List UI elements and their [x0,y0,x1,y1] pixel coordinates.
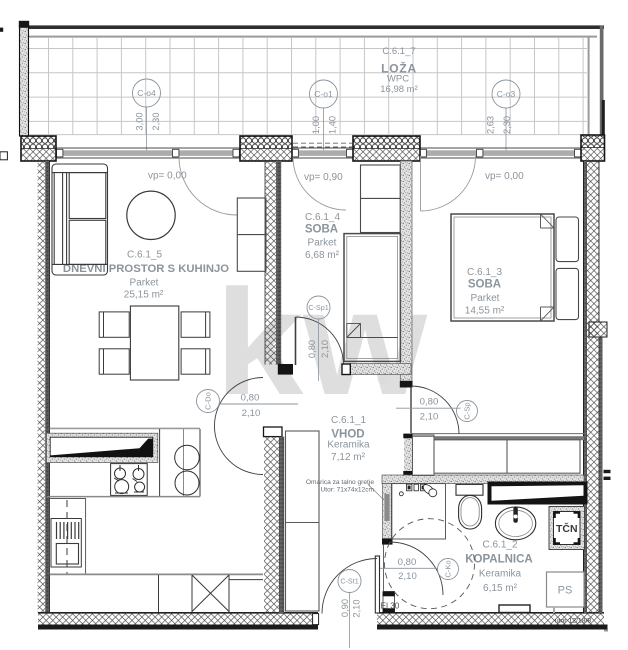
svg-text:C-Ko: C-Ko [444,560,453,577]
svg-text:C-o3: C-o3 [497,89,516,99]
svg-text:C-Sp: C-Sp [463,402,472,419]
svg-text:vp= 0,00: vp= 0,00 [485,171,524,182]
svg-text:KOPALNICA: KOPALNICA [465,554,533,566]
svg-text:7,12 m²: 7,12 m² [331,452,366,463]
svg-text:C.6.1_1: C.6.1_1 [331,415,366,426]
svg-text:TČN: TČN [556,522,578,535]
svg-text:SOBA: SOBA [305,224,338,236]
svg-text:utor 12/18/8: utor 12/18/8 [555,618,591,625]
svg-text:Utor: 71x74x12cm: Utor: 71x74x12cm [320,487,374,494]
svg-text:vp= 0,00: vp= 0,00 [148,171,187,182]
svg-text:C-Do: C-Do [204,392,213,410]
svg-text:2,30: 2,30 [151,112,161,130]
svg-text:0,80: 0,80 [398,557,417,568]
svg-text:2,30: 2,30 [502,116,512,134]
svg-text:3,00: 3,00 [135,112,145,130]
svg-text:2,10: 2,10 [420,412,439,423]
svg-text:16,98 m²: 16,98 m² [380,84,418,95]
svg-text:6,68 m²: 6,68 m² [305,250,340,261]
svg-text:1,00: 1,00 [311,116,321,134]
svg-text:2,10: 2,10 [320,340,330,358]
svg-text:Parket: Parket [130,278,159,289]
svg-text:vp= 0,90: vp= 0,90 [304,172,343,183]
svg-text:C-Sp1: C-Sp1 [308,303,328,312]
svg-text:0,80: 0,80 [241,393,260,404]
svg-text:2,10: 2,10 [351,599,361,617]
svg-text:6,15 m²: 6,15 m² [483,583,518,594]
svg-text:C.6.1_3: C.6.1_3 [467,267,502,278]
svg-text:0,80: 0,80 [307,340,317,358]
svg-text:2,10: 2,10 [242,408,261,419]
svg-text:Parket: Parket [471,293,500,304]
svg-text:Parket: Parket [308,238,337,249]
svg-text:0,90: 0,90 [340,599,350,617]
svg-text:C-St1: C-St1 [340,577,358,586]
svg-text:Keramika: Keramika [327,440,370,451]
svg-text:WPC: WPC [387,74,409,85]
svg-text:C.6.1_5: C.6.1_5 [127,250,162,261]
svg-text:C-o1: C-o1 [314,89,333,99]
svg-text:El 30: El 30 [381,602,400,611]
svg-text:2,10: 2,10 [398,571,417,582]
svg-text:1,40: 1,40 [327,116,337,134]
svg-text:2,63: 2,63 [486,116,496,134]
svg-text:C.6.1_7: C.6.1_7 [382,46,415,57]
svg-text:0,80: 0,80 [420,397,439,408]
svg-text:C-o4: C-o4 [137,88,156,98]
svg-text:C.6.1_4: C.6.1_4 [305,212,340,223]
svg-text:Omarica za talno gretje: Omarica za talno gretje [306,479,374,486]
svg-text:14,55 m²: 14,55 m² [465,306,505,317]
svg-text:25,15 m²: 25,15 m² [124,290,164,301]
svg-text:Keramika: Keramika [479,569,522,580]
svg-text:C.6.1_2: C.6.1_2 [482,540,517,551]
svg-text:SOBA: SOBA [468,279,501,291]
svg-text:PS: PS [558,585,573,597]
